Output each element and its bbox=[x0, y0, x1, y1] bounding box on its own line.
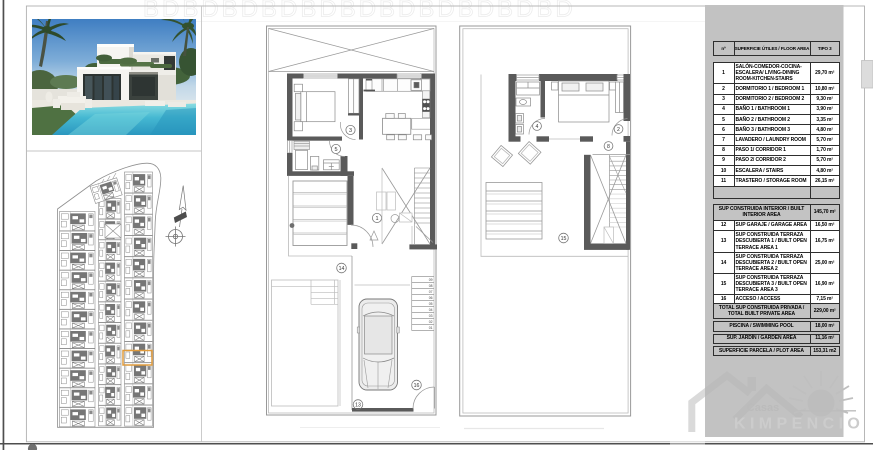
svg-text:14: 14 bbox=[339, 266, 345, 272]
svg-text:04: 04 bbox=[429, 308, 433, 312]
svg-text:02: 02 bbox=[429, 320, 433, 324]
svg-text:06: 06 bbox=[429, 296, 433, 300]
svg-text:5: 5 bbox=[334, 147, 337, 153]
svg-text:3: 3 bbox=[349, 128, 352, 134]
svg-text:KIMPENCIO: KIMPENCIO bbox=[734, 416, 864, 433]
svg-text:13: 13 bbox=[355, 403, 361, 409]
svg-text:4: 4 bbox=[536, 124, 539, 130]
svg-text:07: 07 bbox=[429, 290, 433, 294]
svg-text:15: 15 bbox=[561, 236, 567, 242]
svg-text:2: 2 bbox=[617, 127, 620, 133]
svg-text:05: 05 bbox=[429, 302, 433, 306]
svg-text:08: 08 bbox=[429, 284, 433, 288]
svg-text:8: 8 bbox=[607, 144, 610, 150]
svg-text:09: 09 bbox=[429, 278, 433, 282]
svg-text:Casas: Casas bbox=[747, 402, 779, 414]
svg-text:1: 1 bbox=[375, 216, 378, 222]
svg-text:16: 16 bbox=[414, 383, 420, 389]
svg-text:BDBDBDBDBDBDBDBDBDBDBD: BDBDBDBDBDBDBDBDBDBDBD bbox=[143, 0, 576, 23]
svg-text:01: 01 bbox=[429, 326, 433, 330]
svg-text:03: 03 bbox=[429, 314, 433, 318]
